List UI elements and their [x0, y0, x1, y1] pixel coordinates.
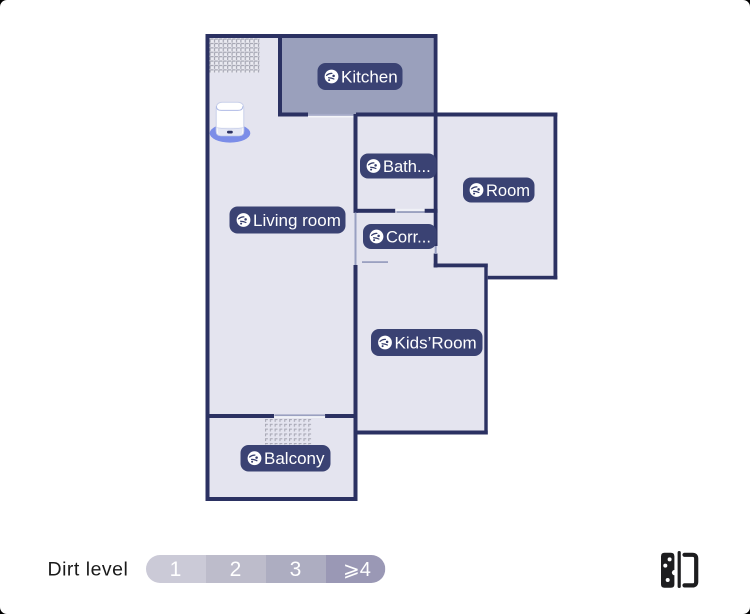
svg-text:Kitchen: Kitchen	[341, 68, 398, 87]
svg-text:Corr...: Corr...	[386, 229, 431, 247]
svg-text:3: 3	[290, 558, 302, 581]
svg-text:2: 2	[230, 558, 242, 581]
svg-text:Balcony: Balcony	[264, 449, 325, 468]
svg-text:1: 1	[170, 558, 182, 581]
svg-text:Living room: Living room	[253, 211, 341, 230]
svg-text:Room: Room	[486, 182, 530, 200]
svg-text:⩾4: ⩾4	[343, 559, 371, 581]
svg-text:Dirt level: Dirt level	[48, 559, 129, 581]
svg-text:Kids’Room: Kids’Room	[395, 334, 477, 353]
svg-text:Bath...: Bath...	[383, 158, 431, 176]
